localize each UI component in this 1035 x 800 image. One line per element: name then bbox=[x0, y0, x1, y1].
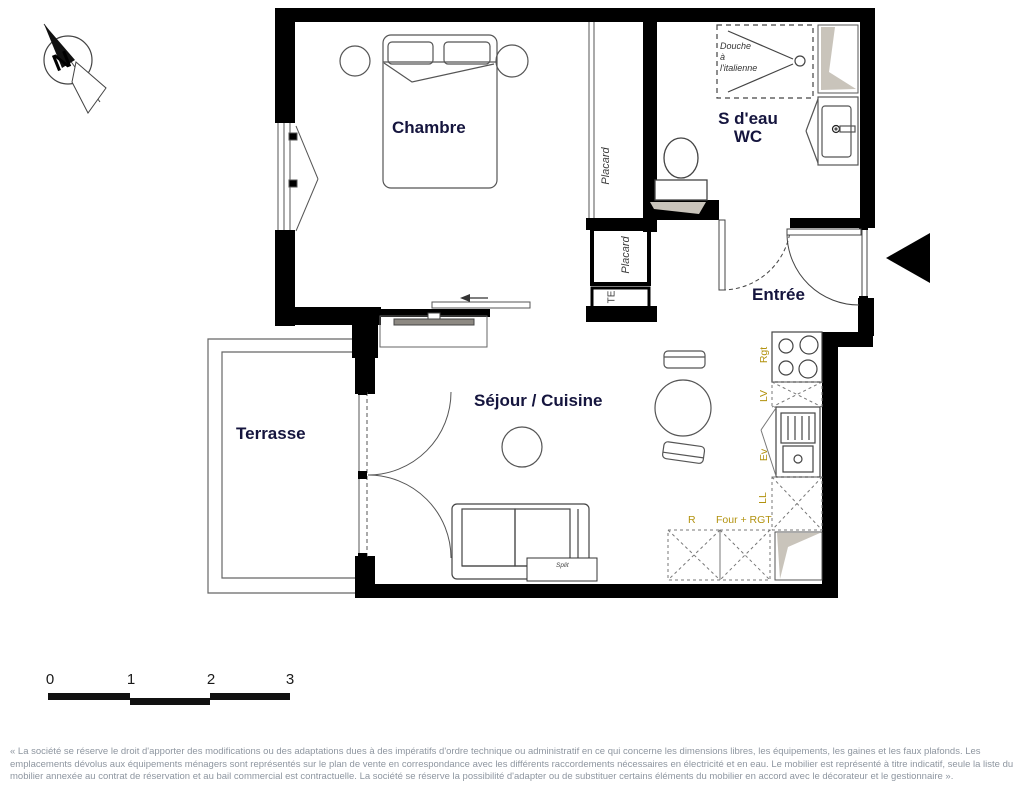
split-label: Split bbox=[556, 562, 569, 569]
scale-tick-0: 0 bbox=[46, 671, 54, 688]
scale-tick-1: 1 bbox=[127, 671, 135, 688]
nightstand-left bbox=[340, 46, 370, 76]
bed bbox=[340, 35, 528, 188]
kitchen-duct bbox=[777, 533, 820, 579]
sliding-door bbox=[432, 294, 530, 308]
rgt-label: Rgt bbox=[758, 347, 770, 363]
oven-slot bbox=[720, 530, 770, 580]
te-label: TE bbox=[607, 291, 618, 304]
french-door bbox=[358, 388, 451, 560]
scale-bar bbox=[48, 693, 290, 705]
ev-label: Ev bbox=[758, 449, 770, 461]
placard-upper-outline bbox=[589, 22, 594, 218]
tv-console bbox=[380, 313, 487, 347]
north-arrow-icon bbox=[44, 24, 106, 113]
toilet bbox=[655, 138, 707, 200]
lv-label: LV bbox=[758, 390, 770, 402]
kitchen-sink bbox=[761, 407, 820, 477]
scale-tick-3: 3 bbox=[286, 671, 294, 688]
sejour-cuisine-label: Séjour / Cuisine bbox=[474, 392, 602, 410]
te-box bbox=[592, 288, 649, 308]
washer-slot bbox=[772, 477, 822, 530]
nightstand-right bbox=[496, 45, 528, 77]
disclaimer-text: « La société se réserve le droit d'appor… bbox=[10, 746, 1025, 784]
bathroom-door bbox=[719, 220, 790, 290]
chambre-label: Chambre bbox=[392, 119, 466, 137]
douche-label: Douche à l'italienne bbox=[720, 41, 757, 73]
placard-upper-label: Placard bbox=[600, 147, 612, 184]
dishwasher-slot bbox=[772, 382, 822, 407]
cooktop bbox=[772, 332, 822, 382]
coffee-table bbox=[502, 427, 542, 467]
bathroom-duct bbox=[821, 27, 856, 90]
entrance-marker-icon bbox=[886, 233, 930, 283]
floor-plan-page: Chambre S d'eau WC Entrée Séjour / Cuisi… bbox=[0, 0, 1035, 800]
scale-tick-2: 2 bbox=[207, 671, 215, 688]
terrasse-label: Terrasse bbox=[236, 425, 306, 443]
washbasin bbox=[806, 97, 858, 165]
chambre-window bbox=[278, 123, 318, 231]
ll-label: LL bbox=[757, 492, 769, 504]
sdeau-wc-label: S d'eau WC bbox=[700, 110, 796, 147]
terrace-outline bbox=[208, 339, 375, 593]
r-label: R bbox=[688, 514, 696, 526]
entree-label: Entrée bbox=[752, 286, 805, 304]
four-rgt-label: Four + RGT bbox=[716, 514, 772, 526]
dining-set bbox=[655, 351, 711, 464]
placard-lower-label: Placard bbox=[620, 236, 632, 273]
fridge-slot bbox=[668, 530, 720, 580]
